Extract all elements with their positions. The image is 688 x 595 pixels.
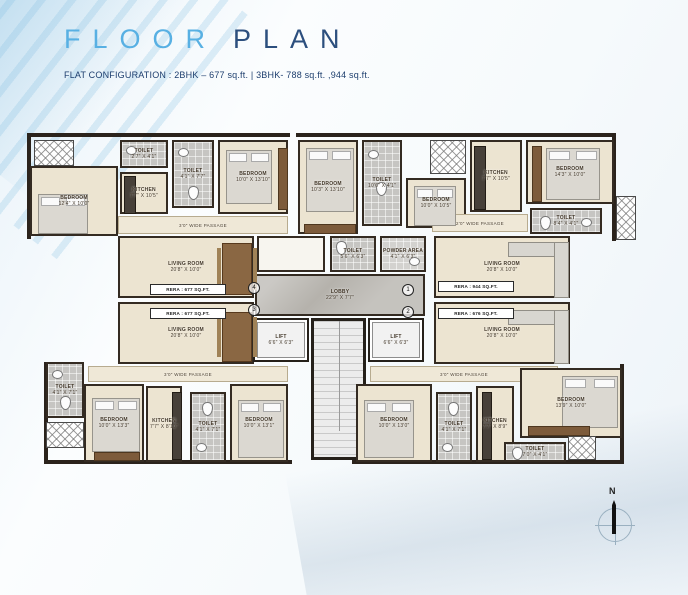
room-dims: 10'3" X 13'10" (311, 187, 345, 194)
passage: 3'0" WIDE PASSAGE (88, 366, 288, 382)
compass: N (592, 486, 638, 556)
basin (368, 150, 379, 159)
page-title-floor: FLOOR (64, 24, 217, 54)
room-dims: 20'8" X 10'0" (168, 267, 204, 274)
passage-label: 3'0" WIDE PASSAGE (440, 372, 488, 377)
room-bedroom: BEDROOM10'0" X 13'1" (230, 384, 288, 462)
room-bedroom: BEDROOM10'0" X 13'10" (218, 140, 288, 214)
rera-badge: RERA : 677 SQ.FT. (150, 308, 226, 319)
room-dims: 7'7" X 8'9" (483, 424, 508, 431)
unit-number-1: 1 (402, 284, 414, 296)
room-bedroom: BEDROOM12'4" X 10'0" (30, 166, 118, 236)
page-title-plan: PLAN (233, 24, 352, 54)
room-dims: 12'4" X 10'0" (59, 201, 90, 208)
room-dims: 10'0" X 10'5" (421, 203, 452, 210)
dry-balcony-hatch (34, 140, 74, 166)
room-dims: 10'0" X 13'10" (236, 177, 270, 184)
wall (296, 133, 616, 137)
room-toilet: TOILET4'1" X 7'1" (190, 392, 226, 462)
wc (60, 396, 71, 410)
passage-label: 2'0" WIDE PASSAGE (456, 221, 504, 226)
room-dims: 4'1" X 7'1" (442, 427, 467, 434)
passage-label: 3'0" WIDE PASSAGE (164, 372, 212, 377)
room-toilet: TOILET2'7" X 4'1" (120, 140, 168, 168)
dry-balcony-hatch (568, 436, 596, 460)
room-bedroom: BEDROOM14'3" X 10'0" (526, 140, 614, 204)
room-dims: 6'6" X 6'3" (269, 340, 294, 347)
rera-badge: RERA : 677 SQ.FT. (150, 284, 226, 295)
lift: LIFT6'6" X 6'3" (368, 318, 424, 362)
room-toilet: TOILET8'4" X 4'1" (530, 208, 602, 234)
wc (512, 447, 523, 460)
room-toilet: TOILET5'6" X 6'3" (330, 236, 376, 272)
room-dims: 4'1" X 7'1" (196, 427, 221, 434)
room-dims: 10'0" X 13'3" (99, 423, 130, 430)
room-dims: 7'7" X 8'10" (150, 424, 178, 431)
room-toilet: TOILET4'1" X 7'1" (46, 362, 84, 418)
room-dims: 7'0" X 4'1" (523, 452, 548, 459)
wardrobe (278, 148, 288, 210)
room-dims: 4'1" X 7'7" (181, 174, 206, 181)
room-powder-area: POWDER AREA4'1" X 6'3" (380, 236, 426, 272)
room-dims: 10'0" X 13'1" (244, 423, 275, 430)
basin (442, 443, 453, 452)
wc (188, 186, 199, 200)
room-dims: 6'6" X 6'3" (384, 340, 409, 347)
dry-balcony-hatch (430, 140, 466, 174)
rera-badge: RERA : 944 SQ.FT. (438, 281, 514, 292)
unit-number-3: 3 (248, 304, 260, 316)
unit-number-2: 2 (402, 306, 414, 318)
passage: 3'0" WIDE PASSAGE (118, 216, 288, 234)
wardrobe (304, 224, 356, 234)
wall (28, 133, 290, 137)
room-toilet: TOILET4'1" X 7'1" (436, 392, 472, 462)
wardrobe (94, 452, 140, 461)
room-dims: 8'4" X 4'1" (554, 221, 579, 228)
room-toilet: TOILET10'6" X 4'1" (362, 140, 402, 226)
room-bedroom: BEDROOM10'3" X 13'10" (298, 140, 358, 234)
room-dims: 7'7" X 10'5" (130, 193, 158, 200)
room-dims: 14'3" X 10'0" (555, 172, 586, 179)
room-dims: 7'7" X 10'5" (482, 176, 510, 183)
wardrobe (532, 146, 542, 202)
dining-table (222, 312, 252, 362)
room-dims: 20'8" X 10'0" (484, 333, 520, 340)
dry-balcony-hatch (46, 422, 84, 448)
room-toilet: TOILET7'0" X 4'1" (504, 442, 566, 462)
room-kitchen: KITCHEN7'7" X 10'5" (470, 140, 522, 212)
basin (52, 370, 63, 379)
compass-needle-icon (612, 500, 616, 534)
room-dims: 10'0" X 13'0" (379, 423, 410, 430)
room-bedroom: BEDROOM10'0" X 13'0" (356, 384, 432, 462)
room-dims: 20'8" X 10'0" (168, 333, 204, 340)
room-bedroom: BEDROOM13'9" X 10'0" (520, 368, 622, 438)
lobby: LOBBY22'9" X 7'7" (255, 274, 425, 316)
unit-number-4: 4 (248, 282, 260, 294)
wc (540, 216, 551, 230)
room-dims: 2'7" X 4'1" (132, 154, 157, 161)
room-dims: 10'6" X 4'1" (368, 183, 396, 190)
sofa (554, 310, 569, 364)
basin (581, 218, 592, 227)
room-kitchen: KITCHEN7'7" X 8'10" (146, 386, 182, 462)
room-dims: 20'8" X 10'0" (484, 267, 520, 274)
lift: LIFT6'6" X 6'3" (253, 318, 309, 362)
room-toilet: TOILET4'1" X 7'7" (172, 140, 214, 208)
room-dims: 5'6" X 6'3" (341, 254, 366, 261)
foyer (257, 236, 325, 272)
room-bedroom: BEDROOM10'0" X 13'3" (84, 384, 144, 462)
room-dims: 4'1" X 7'1" (53, 390, 78, 397)
room-dims: 13'9" X 10'0" (556, 403, 587, 410)
basin (178, 148, 189, 157)
north-label: N (609, 486, 616, 496)
room-dims: 22'9" X 7'7" (326, 295, 354, 302)
sofa (554, 242, 569, 298)
wardrobe (528, 426, 590, 436)
ledge-hatch (616, 196, 636, 240)
room-dims: 4'1" X 6'3" (383, 254, 423, 261)
wc (448, 402, 459, 416)
wc (202, 402, 213, 416)
passage-label: 3'0" WIDE PASSAGE (179, 223, 227, 228)
rera-badge: RERA : 676 SQ.FT. (438, 308, 514, 319)
room-kitchen: KITCHEN7'7" X 10'5" (120, 172, 168, 214)
page-title: FLOORPLAN (64, 24, 352, 55)
basin (196, 443, 207, 452)
page-subtitle: FLAT CONFIGURATION : 2BHK – 677 sq.ft. |… (64, 70, 370, 80)
floor-plan-page: FLOORPLAN FLAT CONFIGURATION : 2BHK – 67… (0, 0, 688, 595)
